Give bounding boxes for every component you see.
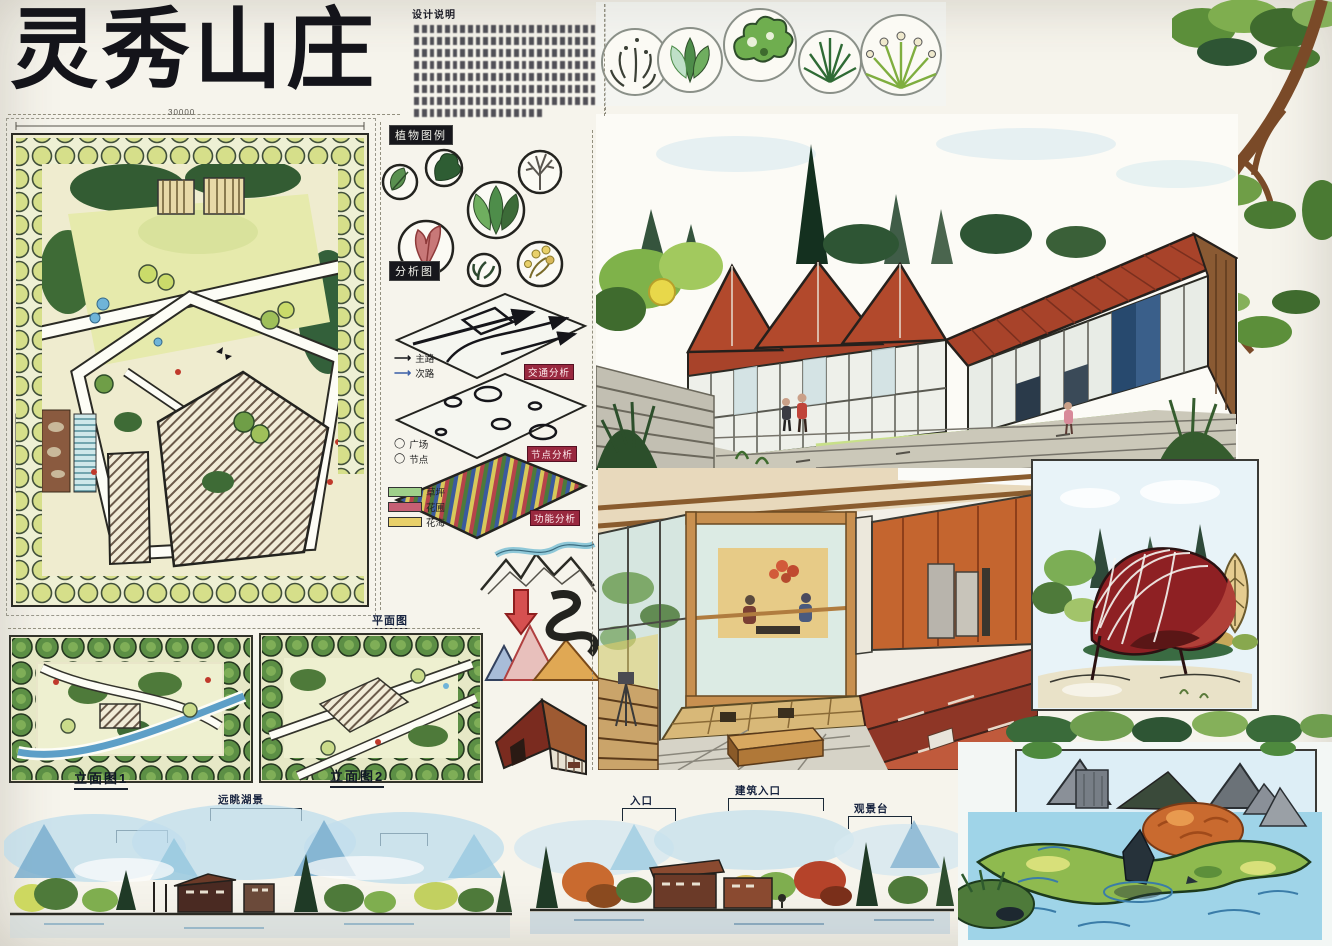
presentation-board: 灵秀山庄 设计说明 (0, 0, 1332, 946)
main-road-label: 主路 (415, 351, 434, 365)
zone-swatch-red (388, 502, 422, 512)
plant-circle-bare-tree (519, 151, 561, 193)
plant-circle-big-leafy (468, 182, 524, 238)
plant-circle-leaf (383, 165, 417, 199)
road-legend: ⟶主路 ⟶次路 (394, 350, 434, 380)
plan-thumb-tag: 平面图 (372, 612, 408, 629)
guide-line (380, 122, 381, 610)
lake-birdseye-vignette (958, 742, 1332, 946)
title-divider (8, 114, 400, 115)
guide-line (592, 130, 593, 770)
elevation-drawing-2 (514, 778, 966, 946)
plan-dimension: 30000 (168, 108, 195, 117)
plaza-ellipse-icon: ◯ (394, 438, 405, 449)
zone-swatch-yellow (388, 517, 422, 527)
handwriting-line (414, 109, 545, 117)
plant-circle-grass (799, 31, 861, 93)
elevation-drawing-1 (4, 786, 518, 946)
node-label: 节点 (409, 452, 428, 466)
master-plan (8, 122, 374, 614)
pavilion-vignette (1030, 458, 1260, 712)
plant-circle-canopy (724, 9, 796, 81)
interior-perspective (598, 468, 1038, 770)
plant-circle-yellow-bloom (518, 242, 562, 286)
plant-circle-flower-grass (861, 15, 941, 95)
treetop-strip (992, 700, 1332, 748)
plant-circle-leafy (658, 28, 722, 92)
zone-swatch-green (388, 487, 422, 497)
handwriting-line (414, 97, 597, 105)
main-road-arrow-icon: ⟶ (394, 351, 411, 365)
guide-line (8, 628, 480, 629)
analysis-tag: 分析图 (390, 262, 439, 280)
design-notes-heading: 设计说明 (412, 6, 599, 21)
exterior-perspective (596, 114, 1238, 470)
building-form-study (490, 692, 602, 778)
node-legend: ◯广场 ◯节点 (394, 436, 428, 466)
watercolor-mountains (4, 804, 504, 884)
zone-label-2: 花圃 (426, 500, 445, 514)
plant-circle-dark-shrub (426, 150, 462, 186)
handwriting-line (414, 85, 597, 93)
left-wing-building (688, 262, 946, 462)
handwriting-line (414, 25, 597, 33)
plaza-label: 广场 (409, 437, 428, 451)
s-curve-road-icon (550, 594, 595, 654)
handwriting-line (414, 73, 597, 81)
detail-plan-2 (258, 632, 484, 784)
guide-line (604, 4, 605, 116)
handwriting-line (414, 49, 597, 57)
traffic-analysis-tag: 交通分析 (524, 364, 574, 380)
secondary-road-arrow-icon: ⟶ (394, 366, 411, 380)
secondary-road-label: 次路 (415, 366, 434, 380)
zone-label-3: 花海 (426, 515, 445, 529)
elevation2-label: 立面图2 (330, 766, 384, 788)
handwriting-line (414, 37, 597, 45)
node-ellipse-icon: ◯ (394, 453, 405, 464)
wood-portal-frame (686, 512, 856, 708)
zone-label-1: 草坪 (426, 485, 445, 499)
node-analysis-tag: 节点分析 (527, 446, 577, 462)
design-notes: 设计说明 (408, 4, 606, 120)
plant-symbol-circles-top (596, 2, 946, 106)
page-title: 灵秀山庄 (10, 2, 378, 99)
handwriting-line (414, 61, 597, 69)
detail-plan-1 (8, 634, 254, 784)
concept-diagram (482, 584, 606, 706)
zone-legend: 草坪 花圃 花海 (388, 484, 445, 529)
